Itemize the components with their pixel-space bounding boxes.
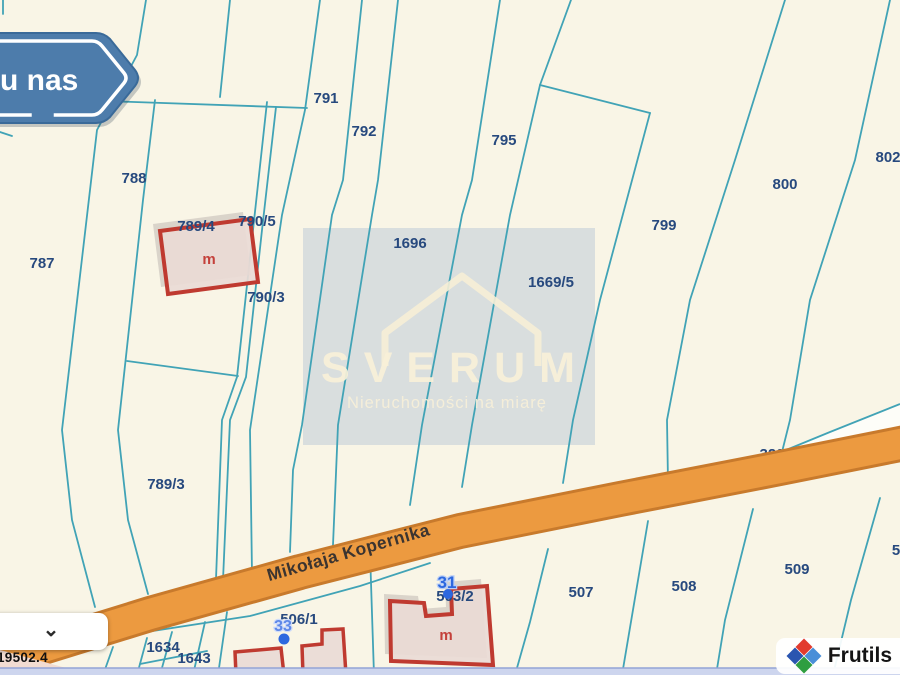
parcel-boundary-line (223, 107, 276, 580)
parcel-label: 799 (651, 217, 676, 234)
parcel-label: 508 (671, 578, 696, 595)
parcel-label: 789/3 (147, 476, 185, 493)
parcel-boundary-line (667, 0, 785, 482)
parcel-boundary-line (216, 102, 267, 579)
parcel-label: 5 (892, 542, 900, 559)
parcel-boundary-line (193, 622, 205, 675)
parcel-label: 509 (784, 561, 809, 578)
map-control-box[interactable]: ⌄ (0, 613, 108, 650)
parcel-boundary-line (0, 132, 12, 136)
bottom-band (0, 668, 900, 675)
parcel-boundary-line (540, 85, 650, 113)
parcel-label: 790/3 (247, 289, 285, 306)
parcel-label: 1669/5 (528, 274, 574, 291)
parcel-label: 788 (121, 170, 146, 187)
marker-31-dot[interactable] (443, 589, 453, 599)
parcel-boundary-line (781, 0, 890, 456)
coordinate-readout: 19502.4 (0, 650, 48, 665)
building-letter: m (202, 251, 215, 268)
parcel-label: 507 (568, 584, 593, 601)
parcel-boundary-line (515, 549, 548, 675)
parcel-boundary-line (127, 361, 238, 376)
frutils-brand-text: Frutils (828, 644, 892, 668)
direction-sign: u nas (0, 33, 141, 127)
parcel-label: 787 (29, 255, 54, 272)
frutils-logo[interactable]: Frutils (776, 638, 900, 674)
parcel-label: 802 (875, 149, 900, 166)
parcel-boundary-line (220, 0, 230, 97)
marker-33[interactable]: 33 (274, 618, 292, 635)
parcel-label: 791 (313, 90, 338, 107)
watermark-tagline: Nieruchomości na miarę (347, 394, 547, 412)
parcel-label: 800 (772, 176, 797, 193)
parcel-label: 795 (491, 132, 516, 149)
parcel-label: 1634 (146, 639, 180, 656)
watermark-brand: SVERUM (321, 344, 589, 392)
parcel-label: 789/4 (177, 218, 215, 235)
chevron-down-icon[interactable]: ⌄ (43, 620, 60, 640)
sign-label: u nas (0, 64, 78, 97)
map-viewport: 320 Mikołaja Kopernika SVERUM Nieruchomo… (0, 0, 900, 675)
parcel-label: 1643 (177, 650, 210, 667)
watermark-backdrop (303, 228, 595, 445)
parcel-label: 792 (351, 123, 376, 140)
map-canvas[interactable]: 320 Mikołaja Kopernika SVERUM Nieruchomo… (0, 0, 900, 675)
parcel-boundary-line (622, 521, 648, 675)
frutils-diamond-icon (789, 641, 819, 671)
marker-33-dot[interactable] (279, 634, 290, 645)
parcel-boundary-line (716, 509, 753, 675)
parcel-label: 790/5 (238, 213, 276, 230)
building-letter: m (439, 627, 452, 644)
parcel-label: 1696 (393, 235, 426, 252)
